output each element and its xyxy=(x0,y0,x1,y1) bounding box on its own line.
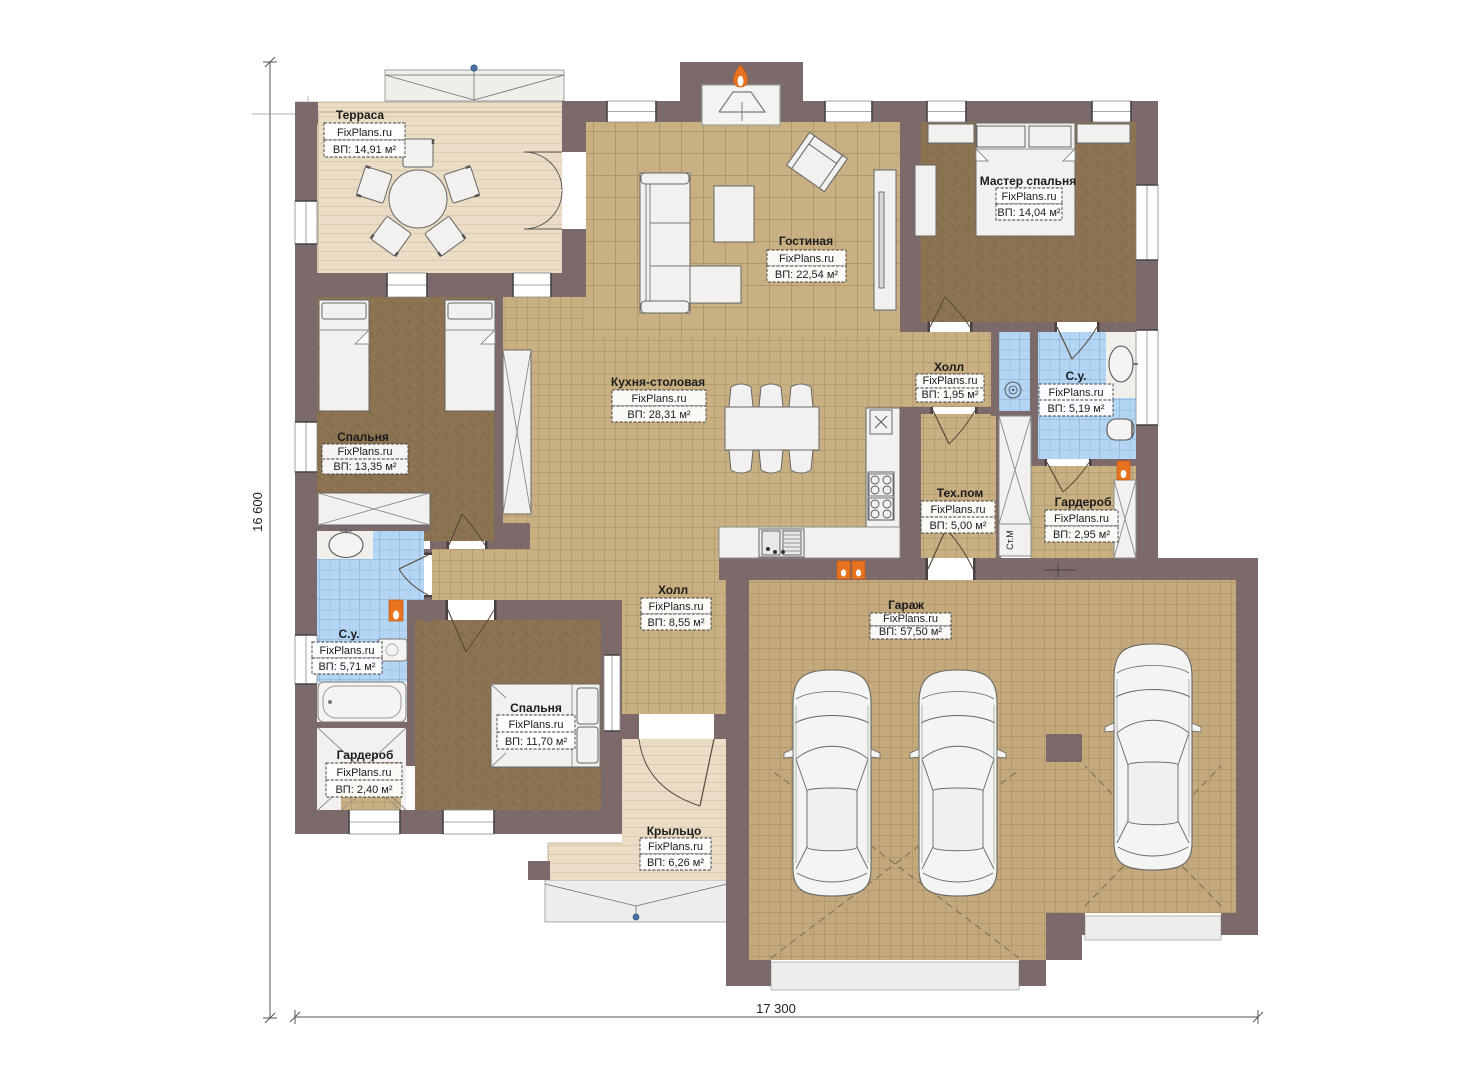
svg-text:FixPlans.ru: FixPlans.ru xyxy=(930,504,985,516)
svg-text:ВП: 2,40 м²: ВП: 2,40 м² xyxy=(335,784,392,796)
svg-text:Гардероб: Гардероб xyxy=(337,748,394,762)
svg-text:17 300: 17 300 xyxy=(756,1001,796,1016)
svg-text:Спальня: Спальня xyxy=(510,701,562,715)
svg-text:ВП: 5,71 м²: ВП: 5,71 м² xyxy=(318,661,375,673)
svg-text:ВП: 11,70 м²: ВП: 11,70 м² xyxy=(505,736,568,748)
svg-text:ВП: 14,04 м²: ВП: 14,04 м² xyxy=(997,207,1061,219)
svg-text:FixPlans.ru: FixPlans.ru xyxy=(319,645,374,657)
svg-text:Ст.М: Ст.М xyxy=(1005,530,1015,550)
svg-text:FixPlans.ru: FixPlans.ru xyxy=(1054,513,1109,525)
svg-text:Холл: Холл xyxy=(934,360,964,374)
svg-text:ВП: 28,31 м²: ВП: 28,31 м² xyxy=(627,409,691,421)
svg-text:Тех.пом: Тех.пом xyxy=(937,486,984,500)
svg-text:ВП: 1,95 м²: ВП: 1,95 м² xyxy=(921,389,978,401)
svg-text:FixPlans.ru: FixPlans.ru xyxy=(631,393,686,405)
svg-text:ВП: 22,54 м²: ВП: 22,54 м² xyxy=(775,269,839,281)
svg-text:ВП: 8,55 м²: ВП: 8,55 м² xyxy=(647,617,704,629)
svg-text:FixPlans.ru: FixPlans.ru xyxy=(508,719,563,731)
svg-text:Мастер спальня: Мастер спальня xyxy=(980,174,1077,188)
svg-text:Терраса: Терраса xyxy=(336,108,385,122)
svg-text:Холл: Холл xyxy=(658,583,688,597)
svg-text:16 600: 16 600 xyxy=(250,492,265,532)
svg-text:ВП: 14,91 м²: ВП: 14,91 м² xyxy=(333,144,397,156)
svg-text:FixPlans.ru: FixPlans.ru xyxy=(336,767,391,779)
svg-text:FixPlans.ru: FixPlans.ru xyxy=(883,613,938,625)
svg-text:FixPlans.ru: FixPlans.ru xyxy=(337,127,392,139)
svg-text:FixPlans.ru: FixPlans.ru xyxy=(337,446,392,458)
svg-text:FixPlans.ru: FixPlans.ru xyxy=(648,601,703,613)
svg-text:ВП: 2,95 м²: ВП: 2,95 м² xyxy=(1053,529,1110,541)
svg-text:ВП: 5,19 м²: ВП: 5,19 м² xyxy=(1047,403,1104,415)
svg-text:Кухня-столовая: Кухня-столовая xyxy=(611,375,705,389)
svg-text:С.у.: С.у. xyxy=(1066,369,1087,383)
svg-text:Гостиная: Гостиная xyxy=(779,234,833,248)
svg-text:FixPlans.ru: FixPlans.ru xyxy=(922,375,977,387)
svg-text:ВП: 6,26 м²: ВП: 6,26 м² xyxy=(647,857,704,869)
svg-text:FixPlans.ru: FixPlans.ru xyxy=(648,841,703,853)
svg-text:ВП: 13,35 м²: ВП: 13,35 м² xyxy=(333,461,397,473)
svg-text:Спальня: Спальня xyxy=(337,430,389,444)
svg-text:ВП: 5,00 м²: ВП: 5,00 м² xyxy=(929,520,986,532)
svg-text:С.у.: С.у. xyxy=(339,627,360,641)
svg-text:FixPlans.ru: FixPlans.ru xyxy=(1048,387,1103,399)
svg-text:FixPlans.ru: FixPlans.ru xyxy=(779,253,834,265)
svg-text:FixPlans.ru: FixPlans.ru xyxy=(1001,191,1056,203)
svg-text:Крыльцо: Крыльцо xyxy=(647,824,702,838)
svg-text:ВП: 57,50 м²: ВП: 57,50 м² xyxy=(879,626,943,638)
svg-text:Гараж: Гараж xyxy=(888,598,924,612)
svg-text:Гардероб: Гардероб xyxy=(1055,495,1112,509)
